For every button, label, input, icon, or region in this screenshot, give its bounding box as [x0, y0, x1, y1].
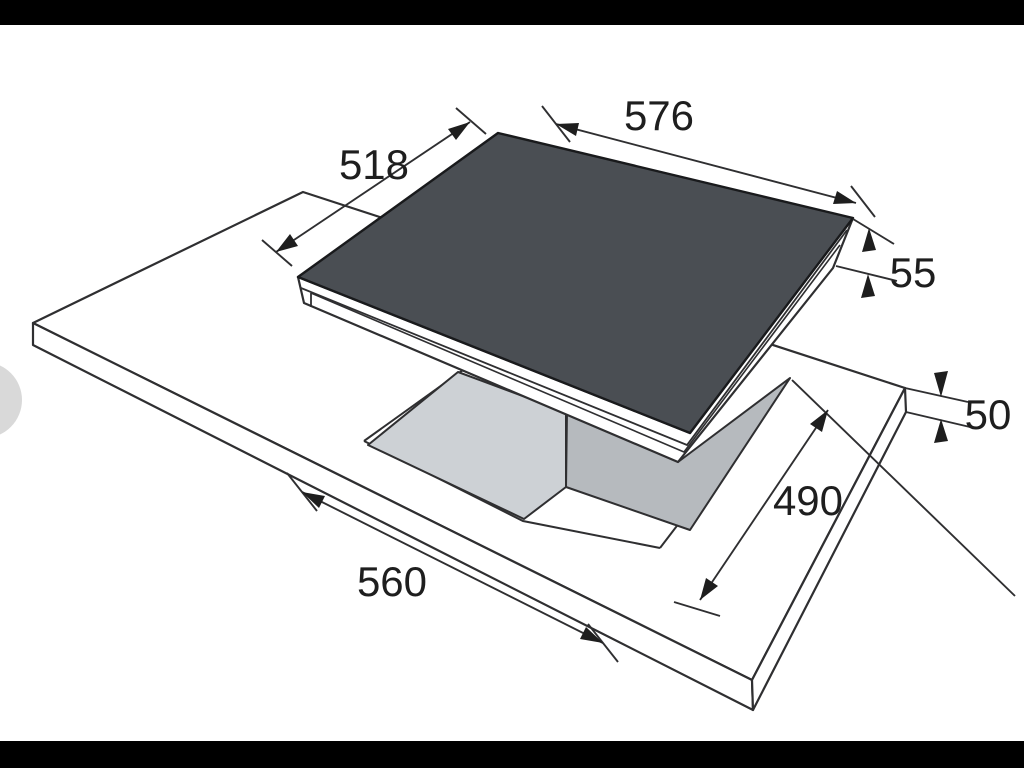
dim-tick [851, 186, 875, 217]
dim-label-hob-width: 576 [624, 92, 694, 139]
dim-ext-50-bottom [906, 412, 970, 427]
arrowhead-icon [833, 191, 856, 204]
dim-label-worktop-thickness: 50 [965, 391, 1012, 438]
dim-label-hob-height: 55 [890, 249, 937, 296]
dim-label-cutout-depth: 490 [773, 477, 843, 524]
letterbox-top-bar [0, 0, 1024, 25]
dim-ext-55-bottom [836, 266, 897, 281]
carousel-handle-icon[interactable] [0, 362, 22, 438]
letterbox-bottom-bar [0, 741, 1024, 768]
screenshot-root: 518 576 55 50 490 560 [0, 0, 1024, 768]
dim-ext-55-top [853, 219, 894, 244]
diagram-canvas: 518 576 55 50 490 560 [0, 0, 1024, 768]
dim-label-cutout-width: 560 [357, 558, 427, 605]
arrowhead-icon [861, 274, 875, 298]
arrowhead-icon [448, 122, 470, 140]
arrowhead-icon [934, 419, 948, 443]
dim-label-hob-depth: 518 [339, 141, 409, 188]
dim-ext-50-top [905, 388, 968, 402]
arrowhead-icon [934, 371, 948, 397]
